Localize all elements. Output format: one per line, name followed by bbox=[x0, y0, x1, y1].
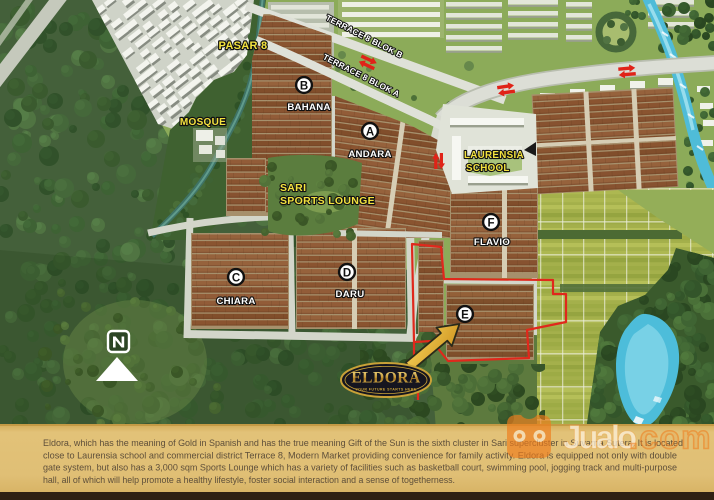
svg-text:Jualo: Jualo bbox=[563, 419, 636, 456]
svg-text:SARI: SARI bbox=[280, 182, 306, 194]
svg-text:SCHOOL: SCHOOL bbox=[466, 163, 510, 174]
svg-text:E: E bbox=[461, 309, 469, 321]
svg-text:.com: .com bbox=[629, 419, 712, 456]
svg-text:B: B bbox=[300, 80, 308, 92]
svg-text:hall, all of which will help p: hall, all of which will help promote a h… bbox=[43, 474, 455, 485]
svg-text:ELDORA: ELDORA bbox=[351, 370, 421, 387]
svg-text:F: F bbox=[487, 217, 494, 229]
svg-text:FLAVIO: FLAVIO bbox=[474, 237, 511, 248]
svg-text:ANDARA: ANDARA bbox=[348, 149, 391, 160]
svg-text:LAURENSIA: LAURENSIA bbox=[464, 150, 524, 161]
svg-text:BAHANA: BAHANA bbox=[287, 102, 330, 113]
svg-text:MOSQUE: MOSQUE bbox=[180, 117, 226, 128]
svg-text:CHIARA: CHIARA bbox=[216, 296, 255, 307]
svg-text:gate system, but also has a 3,: gate system, but also has a 3,000 sqm Sp… bbox=[43, 462, 677, 473]
svg-text:PASAR 8: PASAR 8 bbox=[219, 40, 268, 52]
svg-text:D: D bbox=[343, 267, 351, 279]
svg-text:C: C bbox=[232, 272, 240, 284]
svg-text:A: A bbox=[366, 126, 374, 138]
svg-text:DARU: DARU bbox=[336, 289, 365, 300]
svg-text:SPORTS LOUNGE: SPORTS LOUNGE bbox=[280, 195, 375, 207]
svg-text:YOUR FUTURE STARTS HERE: YOUR FUTURE STARTS HERE bbox=[355, 388, 416, 392]
